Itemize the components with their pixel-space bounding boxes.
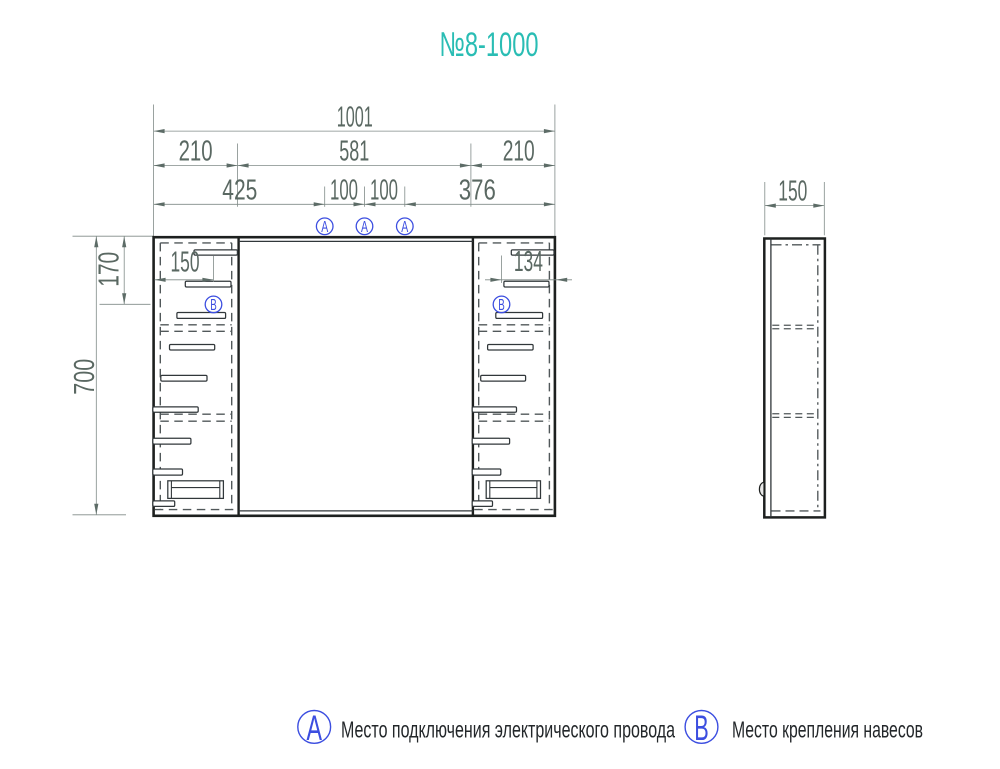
svg-text:B: B <box>498 297 505 314</box>
svg-text:Место крепления навесов: Место крепления навесов <box>732 717 923 743</box>
svg-text:A: A <box>306 709 322 748</box>
svg-text:170: 170 <box>94 252 126 287</box>
svg-text:B: B <box>210 297 217 314</box>
svg-text:210: 210 <box>179 136 213 168</box>
svg-text:A: A <box>401 219 408 236</box>
svg-text:B: B <box>694 709 709 748</box>
svg-text:134: 134 <box>514 246 543 278</box>
svg-text:425: 425 <box>222 175 257 207</box>
svg-text:210: 210 <box>503 136 535 168</box>
svg-text:700: 700 <box>69 359 101 395</box>
svg-text:100: 100 <box>370 175 398 207</box>
svg-text:1001: 1001 <box>337 101 373 133</box>
svg-text:581: 581 <box>339 136 369 168</box>
svg-text:A: A <box>321 219 328 236</box>
svg-text:Место подключения электрическо: Место подключения электрического провода <box>341 717 675 743</box>
svg-text:100: 100 <box>330 175 358 207</box>
svg-text:150: 150 <box>171 246 200 278</box>
svg-text:A: A <box>361 219 368 236</box>
svg-text:376: 376 <box>459 175 496 207</box>
svg-text:№8-1000: №8-1000 <box>440 26 539 64</box>
svg-text:150: 150 <box>778 175 807 207</box>
